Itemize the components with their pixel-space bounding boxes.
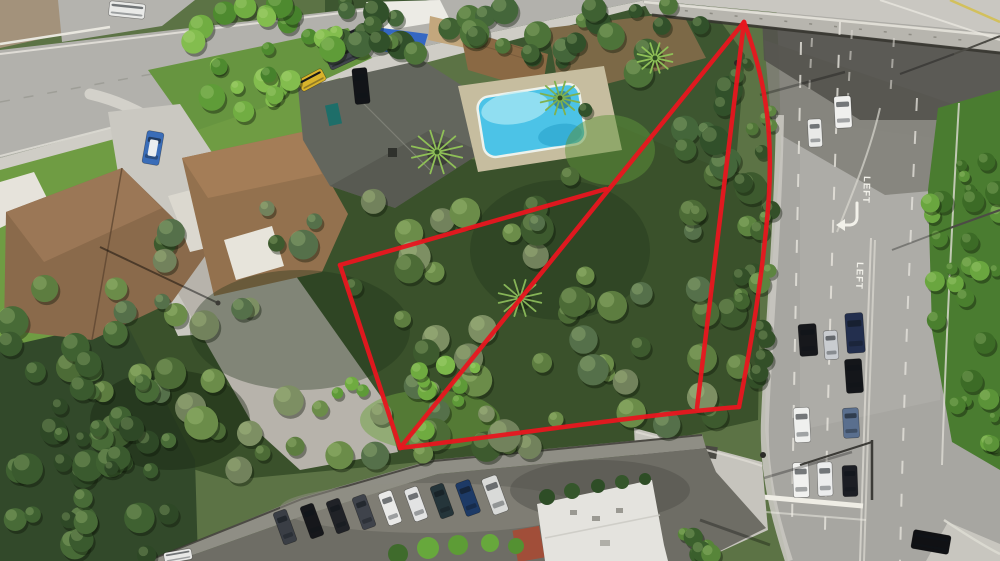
hedge-2 bbox=[564, 483, 580, 499]
streetlight-pole-dot bbox=[216, 301, 221, 306]
roof-vent-3 bbox=[616, 508, 623, 513]
road-car-white-1 bbox=[834, 96, 853, 129]
aerial-photo: LEFTLEFT bbox=[0, 0, 1000, 561]
road-car-black-1 bbox=[798, 323, 818, 356]
hedge-4 bbox=[615, 475, 629, 489]
road-suv-blue bbox=[845, 312, 866, 353]
road-marking-left-text-1: LEFT bbox=[860, 176, 872, 204]
road-car-bluegray bbox=[842, 408, 860, 439]
lot-bush-5 bbox=[508, 538, 524, 554]
lot-bush-2 bbox=[417, 537, 439, 559]
road-car-white-2 bbox=[807, 119, 822, 148]
road-car-white-3 bbox=[793, 407, 811, 443]
road-suv-black bbox=[844, 358, 863, 393]
pedestrian-dot-1 bbox=[760, 452, 766, 458]
road-marking-left-text-2: LEFT bbox=[853, 262, 865, 290]
chimney bbox=[388, 148, 397, 157]
hedge-1 bbox=[539, 489, 555, 505]
roof-vent-2 bbox=[592, 516, 600, 521]
lot-bush-3 bbox=[448, 535, 468, 555]
roof-vent-1 bbox=[570, 510, 577, 515]
road-car-silver bbox=[823, 330, 839, 360]
hedge-5 bbox=[639, 473, 651, 485]
road-car-white-5 bbox=[817, 462, 833, 497]
hedge-3 bbox=[591, 479, 605, 493]
road-car-dark bbox=[842, 465, 858, 497]
roof-vent-4 bbox=[600, 540, 610, 546]
lot-bush-4 bbox=[481, 534, 499, 552]
aerial-photo-stage: LEFTLEFT bbox=[0, 0, 1000, 561]
